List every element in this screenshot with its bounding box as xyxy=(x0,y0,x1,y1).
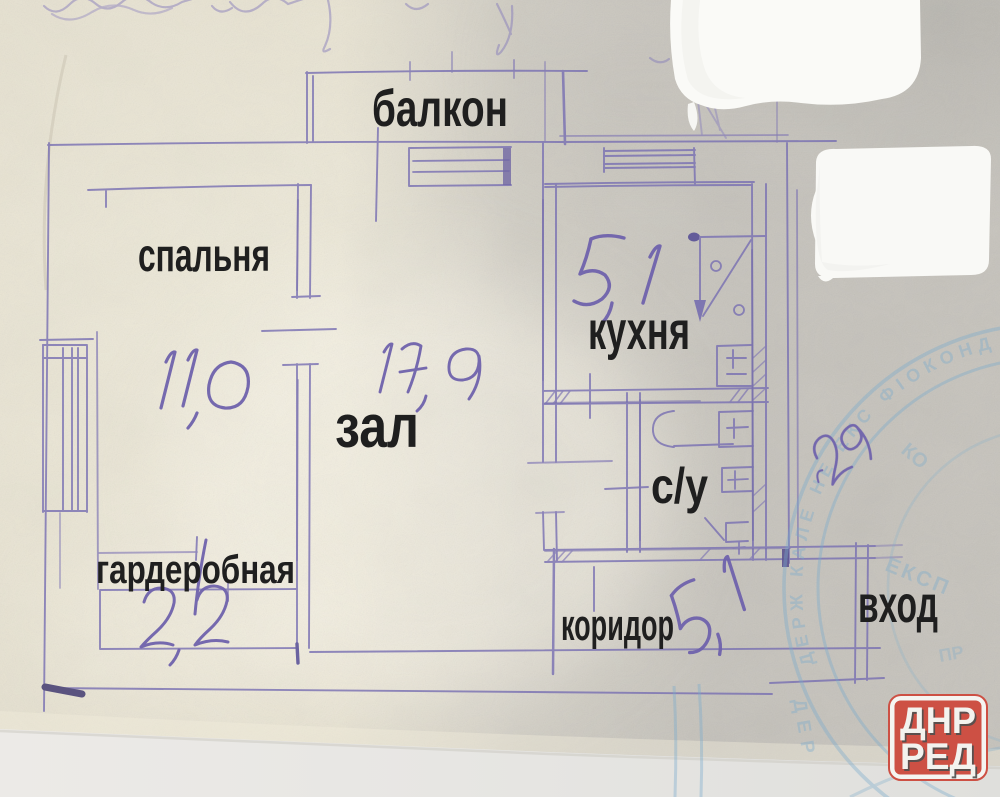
svg-text:гардеробная: гардеробная xyxy=(96,548,295,592)
svg-text:зал: зал xyxy=(335,393,419,460)
svg-text:РЕД: РЕД xyxy=(900,736,976,777)
svg-text:с/у: с/у xyxy=(651,458,708,514)
svg-text:кухня: кухня xyxy=(588,301,690,361)
svg-text:балкон: балкон xyxy=(372,80,508,138)
svg-text:коридор: коридор xyxy=(561,601,674,650)
svg-text:ДНР: ДНР xyxy=(900,700,976,741)
svg-text:вход: вход xyxy=(858,576,938,634)
svg-text:ПР: ПР xyxy=(937,642,965,666)
svg-text:спальня: спальня xyxy=(138,229,270,281)
